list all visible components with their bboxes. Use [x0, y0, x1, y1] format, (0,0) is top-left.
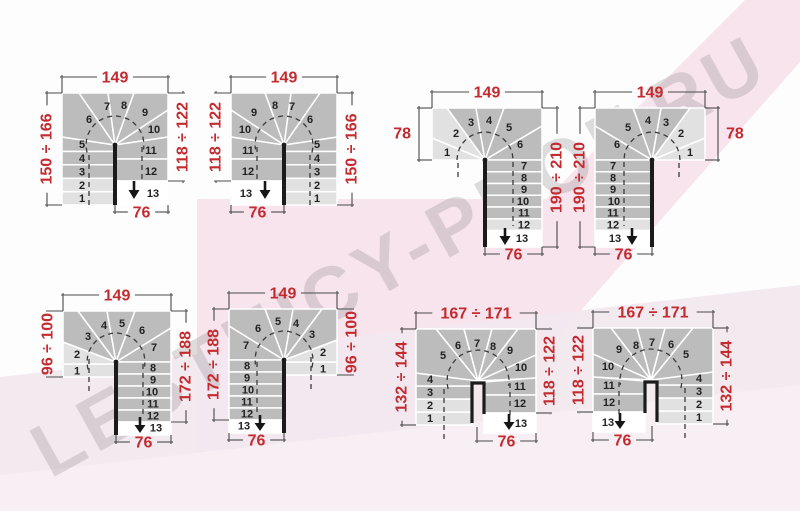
step-number: 4	[79, 153, 86, 165]
step-number: 13	[150, 423, 162, 435]
step-number: 2	[453, 128, 459, 140]
dimension-label: 96 ÷ 100	[344, 311, 361, 373]
stair-diagram-l-turn-right: 1234567891011121314978190 ÷ 21076	[572, 85, 744, 264]
step-number: 9	[142, 107, 148, 119]
step-number: 1	[696, 412, 702, 424]
step-number: 1	[314, 193, 320, 205]
dimension-label: 96 ÷ 100	[40, 313, 57, 375]
step-number: 6	[517, 139, 523, 151]
step-number: 3	[79, 167, 85, 179]
step-number: 2	[314, 180, 320, 192]
step-number: 1	[74, 366, 80, 378]
dimension-label: 76	[135, 435, 153, 452]
step-number: 4	[645, 115, 652, 127]
step-number: 13	[602, 417, 614, 429]
step-number: 4	[696, 373, 703, 385]
step-number: 5	[314, 139, 320, 151]
step-number: 3	[696, 386, 702, 398]
step-number: 12	[514, 398, 526, 410]
step-number: 5	[275, 316, 281, 328]
step-number: 12	[607, 220, 619, 232]
step-number: 3	[85, 331, 91, 343]
step-number: 11	[607, 208, 619, 220]
step-number: 10	[517, 196, 529, 208]
newel-post-dot	[282, 358, 287, 363]
step-number: 7	[104, 101, 110, 113]
dimension-label: 167 ÷ 171	[440, 306, 511, 323]
step-number: 6	[307, 114, 313, 126]
step-number: 10	[146, 387, 158, 399]
step-number: 7	[474, 338, 480, 350]
step-number: 11	[242, 145, 254, 157]
dimension-label: 172 ÷ 188	[178, 331, 195, 402]
newel-post-dot	[650, 158, 655, 163]
dimension-label: 76	[505, 247, 523, 264]
step-number: 4	[427, 374, 434, 386]
step-number: 2	[678, 128, 684, 140]
step-number: 6	[614, 139, 620, 151]
step-number: 2	[74, 349, 80, 361]
dimension-label: 132 ÷ 144	[719, 340, 736, 411]
stair-diagram-u-turn-wide-left: 12345678910111213167 ÷ 171132 ÷ 144118 ÷…	[394, 306, 559, 451]
step-number: 3	[468, 117, 474, 129]
dimension-label: 190 ÷ 210	[572, 142, 589, 213]
step-number: 5	[683, 349, 689, 361]
step-number: 2	[79, 180, 85, 192]
step-number: 11	[518, 208, 530, 220]
step-number: 6	[139, 325, 145, 337]
step-13	[595, 231, 652, 248]
step-number: 10	[148, 124, 160, 136]
step-number: 9	[507, 345, 513, 357]
step-number: 1	[687, 147, 693, 159]
step-13	[485, 231, 542, 248]
stair-diagram-u-turn-wide-right: 12345678910111213167 ÷ 171132 ÷ 144118 ÷…	[571, 305, 736, 450]
dimension-label: 118 ÷ 122	[175, 102, 192, 172]
dimension-label: 118 ÷ 122	[208, 102, 225, 172]
step-number: 2	[696, 399, 702, 411]
step-number: 13	[609, 233, 621, 245]
newel-post-dot	[114, 360, 119, 365]
step-number: 8	[490, 341, 496, 353]
stair-diagram-u-turn-long-right: 1234567891011121314996 ÷ 100172 ÷ 18876	[206, 286, 361, 450]
step-number: 10	[239, 124, 251, 136]
step-number: 8	[610, 173, 616, 185]
dimension-label: 149	[474, 85, 501, 102]
stair-plans-sheet: LESTNICY-PROF.RU 12345678910111213149150…	[0, 0, 800, 511]
step-number: 7	[521, 161, 527, 173]
step-number: 9	[616, 344, 622, 356]
step-number: 6	[255, 323, 261, 335]
step-number: 11	[241, 397, 253, 409]
step-13	[115, 181, 168, 205]
step-number: 12	[242, 166, 254, 178]
dimension-label: 149	[104, 288, 131, 305]
step-number: 13	[238, 421, 250, 433]
step-number: 3	[663, 117, 669, 129]
step-number: 7	[243, 340, 249, 352]
step-number: 12	[518, 220, 530, 232]
step-number: 3	[314, 167, 320, 179]
step-number: 9	[150, 375, 156, 387]
dimension-label: 76	[614, 433, 632, 450]
stairwell-wall	[645, 382, 657, 422]
step-number: 13	[147, 188, 159, 200]
dimension-label: 172 ÷ 188	[206, 329, 223, 400]
step-number: 8	[272, 100, 278, 112]
step-number: 4	[293, 318, 300, 330]
step-number: 9	[251, 107, 257, 119]
step-number: 5	[79, 139, 85, 151]
newel-post-dot	[282, 143, 287, 148]
dimension-label: 149	[637, 85, 664, 102]
dimension-label: 150 ÷ 166	[344, 113, 361, 184]
step-number: 11	[514, 381, 526, 393]
step-number: 11	[147, 399, 159, 411]
dimension-label: 190 ÷ 210	[549, 142, 566, 213]
stairwell-wall	[472, 383, 484, 423]
dimension-label: 78	[726, 126, 744, 143]
step-number: 4	[101, 320, 108, 332]
dimension-label: 118 ÷ 122	[542, 336, 559, 406]
dimension-label: 150 ÷ 166	[39, 113, 56, 184]
step-number: 11	[603, 380, 615, 392]
step-number: 7	[289, 101, 295, 113]
dimension-label: 149	[271, 70, 298, 87]
step-number: 8	[244, 361, 250, 373]
step-number: 12	[603, 397, 615, 409]
newel-post-dot	[113, 143, 118, 148]
step-13	[116, 422, 171, 435]
step-number: 4	[486, 115, 493, 127]
step-number: 2	[320, 347, 326, 359]
step-number: 3	[427, 387, 433, 399]
step-number: 12	[147, 411, 159, 423]
dimension-label: 76	[249, 205, 267, 222]
step-number: 1	[320, 364, 326, 376]
step-number: 10	[515, 362, 527, 374]
step-number: 3	[309, 329, 315, 341]
dimension-label: 78	[393, 126, 411, 143]
step-number: 5	[119, 318, 125, 330]
dimension-label: 149	[102, 70, 129, 87]
step-number: 8	[633, 340, 639, 352]
step-number: 11	[145, 145, 157, 157]
stair-diagram-l-turn-left: 1234567891011121314978190 ÷ 21076	[393, 85, 565, 264]
step-number: 9	[521, 184, 527, 196]
dimension-label: 167 ÷ 171	[617, 305, 688, 322]
step-number: 5	[625, 122, 631, 134]
dimension-label: 76	[248, 433, 266, 450]
step-number: 1	[444, 147, 450, 159]
step-number: 13	[240, 188, 252, 200]
step-number: 8	[121, 100, 127, 112]
step-number: 5	[506, 122, 512, 134]
dimension-label: 76	[498, 434, 516, 451]
step-number: 1	[79, 193, 85, 205]
stair-diagram-u-turn-left: 12345678910111213149150 ÷ 166118 ÷ 12276	[39, 70, 192, 222]
stair-diagrams-canvas: 12345678910111213149150 ÷ 166118 ÷ 12276…	[0, 0, 800, 511]
step-number: 6	[455, 340, 461, 352]
step-number: 10	[602, 361, 614, 373]
dimension-label: 76	[615, 247, 633, 264]
step-number: 8	[150, 363, 156, 375]
newel-post-dot	[483, 158, 488, 163]
step-number: 10	[242, 385, 254, 397]
dimension-label: 118 ÷ 122	[571, 335, 588, 405]
step-number: 9	[244, 373, 250, 385]
step-number: 5	[440, 350, 446, 362]
step-number: 10	[608, 196, 620, 208]
step-number: 6	[86, 114, 92, 126]
step-number: 12	[145, 166, 157, 178]
dimension-label: 132 ÷ 144	[394, 341, 411, 412]
step-number: 2	[427, 400, 433, 412]
step-number: 7	[610, 161, 616, 173]
stair-diagram-u-turn-long-left: 1234567891011121314996 ÷ 100172 ÷ 18876	[40, 288, 195, 452]
step-number: 8	[521, 173, 527, 185]
stair-diagram-u-turn-right: 12345678910111213149150 ÷ 166118 ÷ 12276	[208, 70, 361, 222]
step-number: 12	[241, 409, 253, 421]
step-number: 7	[649, 337, 655, 349]
step-number: 13	[515, 418, 527, 430]
step-number: 7	[151, 342, 157, 354]
dimension-label: 149	[270, 286, 297, 303]
step-number: 13	[516, 233, 528, 245]
step-number: 6	[668, 339, 674, 351]
step-number: 9	[610, 184, 616, 196]
step-number: 4	[314, 153, 321, 165]
dimension-label: 76	[133, 205, 151, 222]
step-number: 1	[427, 413, 433, 425]
